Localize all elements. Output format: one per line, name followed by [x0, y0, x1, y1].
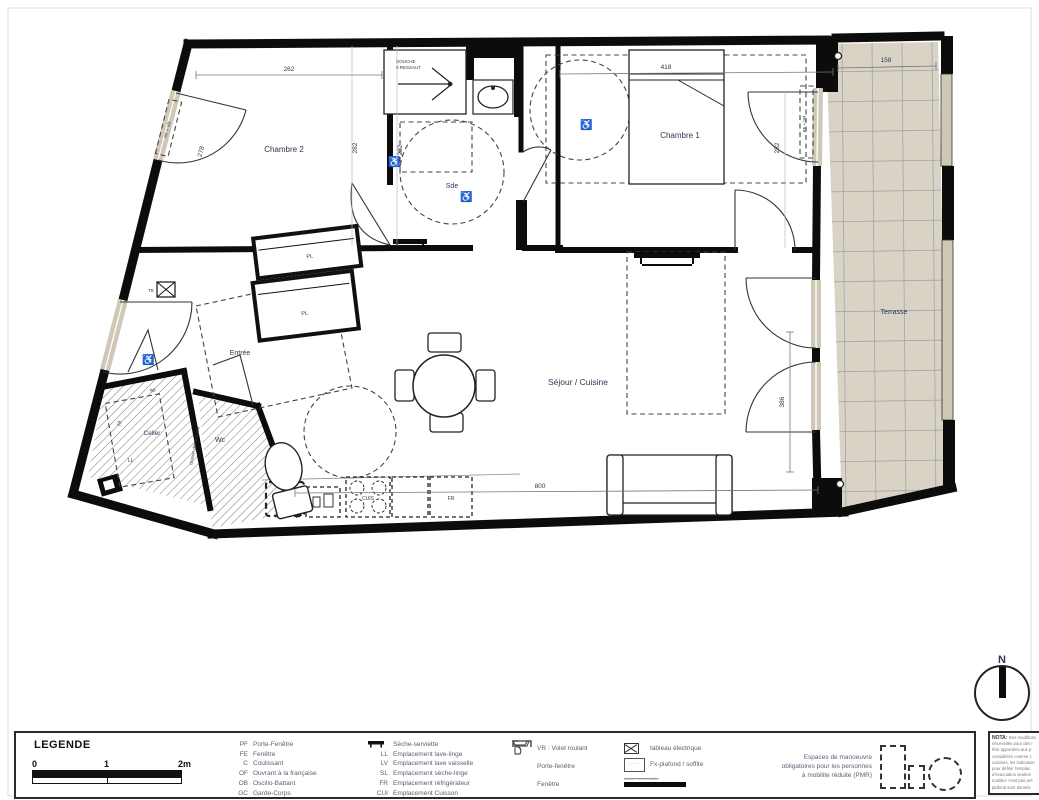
pmr-rect-large-icon	[880, 745, 906, 789]
terrasse-floor	[820, 40, 950, 510]
nota-title: NOTA:	[992, 735, 1007, 741]
tv-bench	[634, 252, 700, 266]
abbr-label: Porte-Fenêtre	[253, 740, 293, 750]
scale-bar-bottom	[32, 777, 182, 784]
abbr-label: Oscillo-Battant	[253, 779, 295, 789]
legend-row: CCoulissant	[226, 759, 317, 769]
pmr-line: à mobilite réduite (PMR)	[710, 771, 872, 780]
svg-text:282: 282	[397, 144, 404, 155]
abbr: GC	[226, 789, 248, 799]
abbr: SL	[366, 769, 388, 779]
abbr: C	[226, 759, 248, 769]
symbol-label: Porte-fenêtre	[537, 763, 575, 770]
equip-label: Emplacement lave vaisselle	[393, 759, 473, 769]
svg-text:♿: ♿	[388, 155, 400, 168]
legend-row: LVEmplacement lave vaisselle	[366, 759, 473, 769]
svg-text:386: 386	[779, 396, 786, 407]
scale-1: 1	[104, 759, 109, 769]
pmr-note: Espaces de manoeuvre obligatoires pour l…	[710, 753, 872, 780]
svg-text:158: 158	[881, 57, 892, 64]
north-arrow: N	[975, 654, 1029, 720]
symbol-label: Fenêtre	[537, 781, 559, 788]
svg-text:N: N	[998, 654, 1006, 666]
abbr: CUI	[366, 789, 388, 799]
legend-row: SLEmplacement sèche-linge	[366, 769, 473, 779]
floor-plan-drawing: ♿ ♿ ♿ ♿ DOUCHE 0 RESSAUT	[0, 0, 1039, 800]
abbr: FR	[366, 779, 388, 789]
abbr: FE	[226, 750, 248, 760]
wall-stub	[516, 200, 527, 250]
svg-text:DOUCHE: DOUCHE	[396, 59, 416, 64]
washbasin	[473, 80, 513, 114]
svg-text:TE: TE	[148, 288, 154, 293]
cuis-label: CUIS	[362, 496, 375, 502]
legend-symbols2: tableau électrique ···Fx-plafond / soffi…	[624, 741, 703, 787]
abbr: OB	[226, 779, 248, 789]
symbol-label: tableau électrique	[650, 745, 701, 752]
svg-text:0 RESSAUT: 0 RESSAUT	[396, 65, 421, 70]
pmr-line: obligatoires pour les personnes	[710, 762, 872, 771]
room-label-terrasse: Terrasse	[881, 309, 908, 316]
pmr-line: Espaces de manoeuvre	[710, 753, 872, 762]
legend-row: ···Fx-plafond / soffite	[624, 756, 703, 773]
legend-row: FREmplacement réfrigérateur	[366, 779, 473, 789]
room-label-entree: Entrée	[230, 350, 251, 357]
svg-text:♿: ♿	[142, 353, 154, 366]
cloison-legend-label: cloison démontable	[624, 776, 703, 781]
floor-plan-page: { "plan": { "rooms": { "chambre2": "Cham…	[0, 0, 1039, 800]
svg-text:♿: ♿	[460, 190, 472, 203]
svg-text:418: 418	[661, 64, 672, 71]
equip-label: Sèche-serviette	[393, 740, 438, 750]
pmr-circle-icon	[928, 757, 962, 791]
svg-text:282: 282	[774, 142, 781, 153]
svg-text:PL: PL	[306, 254, 313, 261]
nota-line: mobilier n'est pas pré	[992, 778, 1039, 784]
svg-text:PL: PL	[301, 311, 308, 318]
sofa	[607, 455, 732, 515]
nota-line: plafond sont donnée	[992, 785, 1039, 791]
scale-0: 0	[32, 759, 37, 769]
svg-text:800: 800	[535, 483, 546, 490]
legend-title: LEGENDE	[34, 739, 91, 751]
legend-row: Fenêtre	[511, 775, 588, 793]
room-label-sde: Sde	[446, 183, 459, 190]
nota-line: considérée comme c	[992, 754, 1039, 760]
fx-plafond-icon: ···	[624, 758, 650, 772]
legend: LEGENDE 0 1 2m PFPorte-Fenêtre FEFenêtre…	[14, 731, 976, 799]
scale-bar: 0 1 2m	[32, 759, 202, 785]
fr-label: FR	[448, 496, 455, 502]
legend-row: OBOscillo-Battant	[226, 779, 317, 789]
pl-closets: PL PL	[247, 226, 369, 341]
room-label-chambre1: Chambre 1	[660, 131, 700, 140]
equip-label: Emplacement Cuisson	[393, 789, 458, 799]
symbol-label: Fx-plafond / soffite	[650, 761, 703, 768]
dining-table	[395, 333, 495, 432]
electrical-box: TE	[148, 282, 175, 297]
wall-stub	[514, 44, 523, 117]
abbr-label: Coulissant	[253, 759, 283, 769]
room-label-wc: Wc	[215, 437, 226, 444]
black-bar-icon	[624, 782, 686, 787]
scale-2m: 2m	[178, 759, 191, 769]
nota-line: Des modificati	[1009, 735, 1036, 740]
room-label-chambre2: Chambre 2	[264, 145, 304, 154]
svg-text:262: 262	[284, 66, 295, 73]
svg-text:♿: ♿	[580, 118, 592, 131]
scale-bar-top	[32, 770, 182, 777]
svg-text:282: 282	[352, 142, 359, 153]
nota-box: NOTA: Des modificati nécessités pour des…	[988, 731, 1039, 795]
room-label-cellier: Celler	[144, 430, 162, 437]
legend-row: GCGarde-Corps	[226, 789, 317, 799]
legend-row: OFOuvrant à la française	[226, 769, 317, 779]
symbol-label: VR : Volet roulant	[537, 745, 588, 752]
legend-row: PFPorte-Fenêtre	[226, 740, 317, 750]
radiator-icon	[366, 740, 388, 750]
abbr-label: Fenêtre	[253, 750, 275, 760]
legend-row: tableau électrique	[624, 741, 703, 756]
svg-text:278: 278	[197, 145, 207, 158]
abbr-label: Ouvrant à la française	[253, 769, 317, 779]
equip-label: Emplacement réfrigérateur	[393, 779, 470, 789]
abbr-label: Garde-Corps	[253, 789, 291, 799]
equip-label: Emplacement lave-linge	[393, 750, 462, 760]
pmr-rect-small-icon	[908, 765, 925, 789]
abbr: LV	[366, 759, 388, 769]
abbr: LL	[366, 750, 388, 760]
electrical-panel-icon	[624, 743, 650, 754]
room-label-sejour: Séjour / Cuisine	[548, 377, 608, 387]
cloison-demontable-legend: cloison démontable	[624, 776, 703, 787]
abbr: OF	[226, 769, 248, 779]
ll-label: LL	[128, 458, 134, 464]
legend-row: FEFenêtre	[226, 750, 317, 760]
legend-row: Sèche-serviette	[366, 740, 473, 750]
legend-abbreviations: PFPorte-Fenêtre FEFenêtre CCoulissant OF…	[226, 740, 317, 798]
equip-label: Emplacement sèche-linge	[393, 769, 468, 779]
bed	[629, 50, 724, 184]
garde-corps	[941, 36, 955, 490]
abbr: PF	[226, 740, 248, 750]
window-label-right: PF + VR	[802, 116, 807, 133]
legend-symbols: VR : Volet roulant Porte-fenêtre Fenêtre	[511, 739, 588, 793]
legend-equipment: Sèche-serviette LLEmplacement lave-linge…	[366, 740, 473, 798]
legend-row: Porte-fenêtre	[511, 757, 588, 775]
legend-row: LLEmplacement lave-linge	[366, 750, 473, 760]
legend-row: CUIEmplacement Cuisson	[366, 789, 473, 799]
